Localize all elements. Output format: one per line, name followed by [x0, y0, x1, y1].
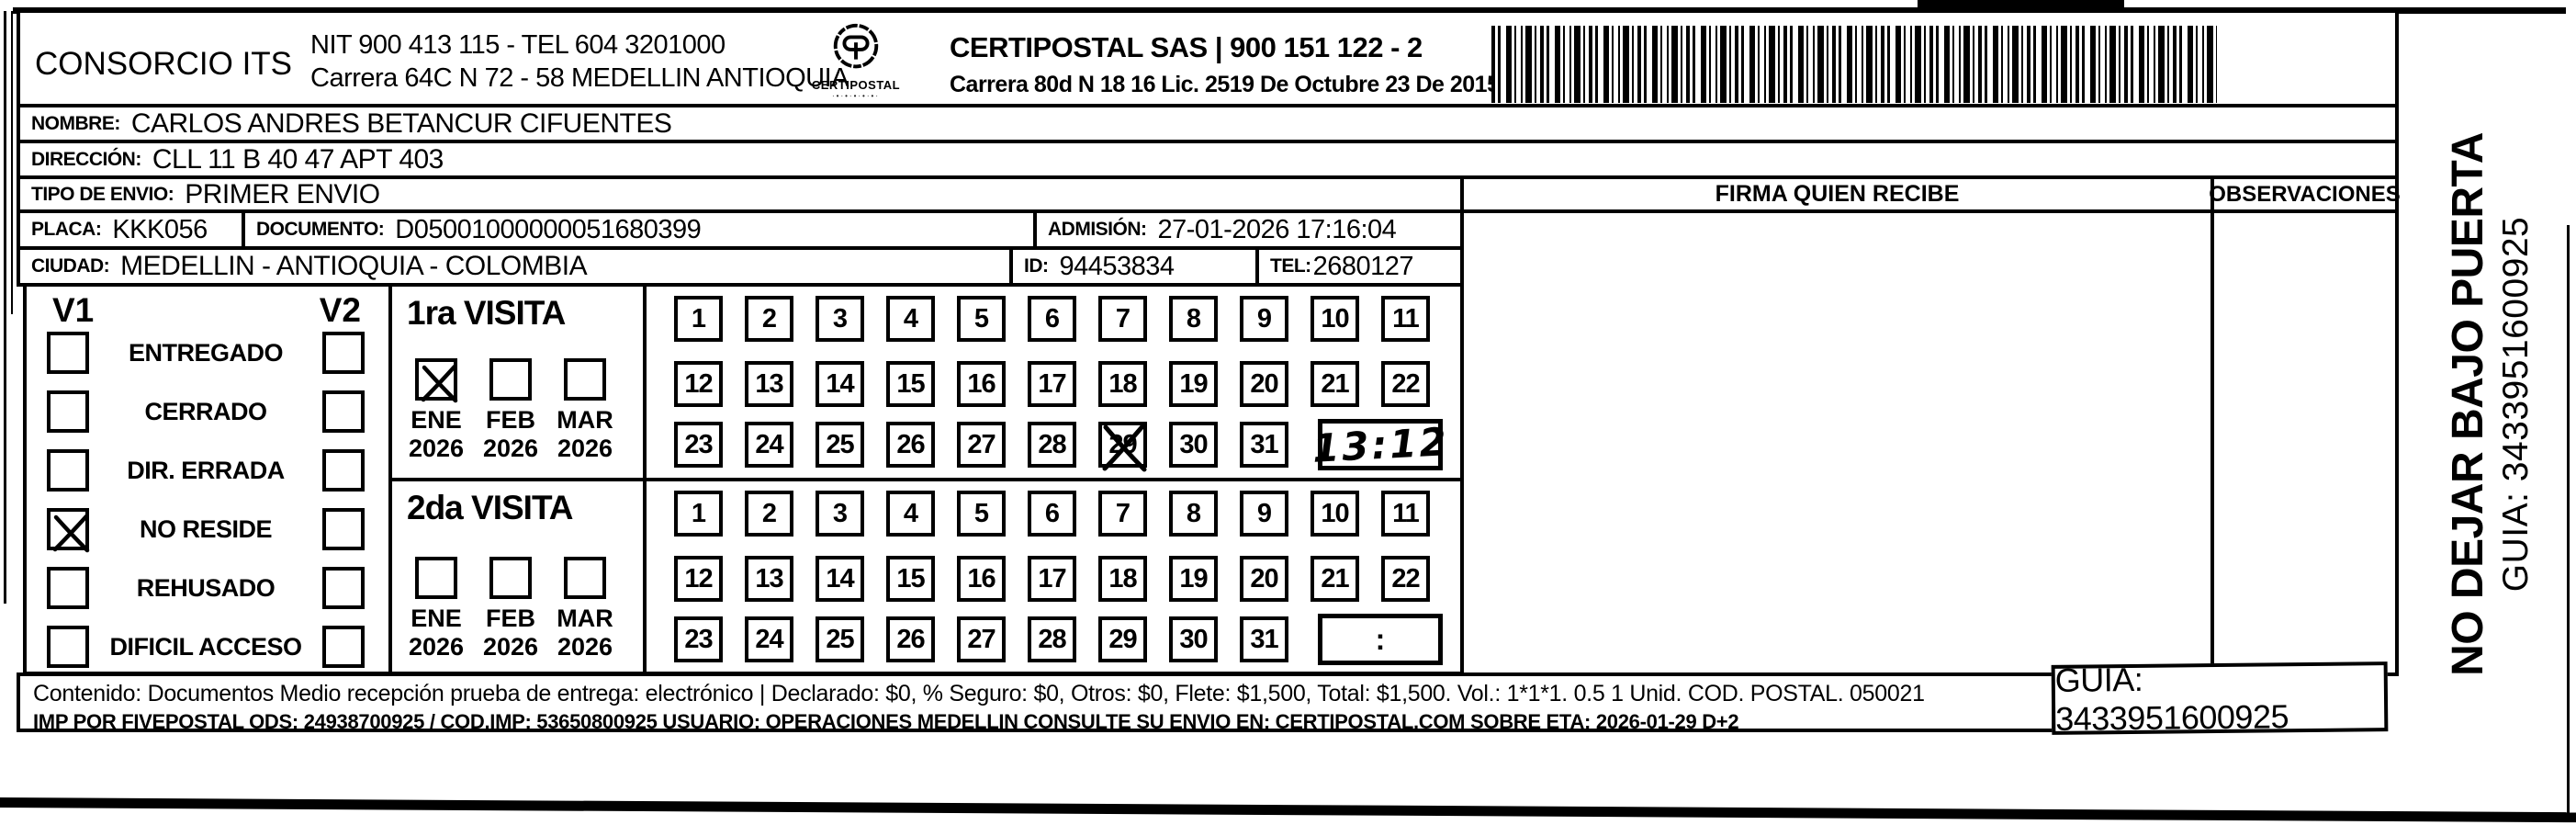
day-number: 11 — [1392, 499, 1419, 529]
bottom-scan-edge-line — [0, 797, 2576, 822]
day-number: 26 — [896, 625, 924, 655]
day-number: 25 — [826, 430, 853, 460]
month-option: MAR2026 — [556, 557, 614, 661]
day-cell: 2 — [745, 296, 793, 342]
day-cell: 19 — [1169, 556, 1218, 602]
day-cell: 4 — [886, 296, 935, 342]
day-number: 25 — [826, 625, 853, 655]
status-checkbox-v2 — [322, 508, 365, 550]
day-number: 15 — [896, 564, 924, 594]
day-cell: 11 — [1381, 296, 1430, 342]
day-cell: 24 — [745, 422, 793, 468]
consorcio-contact-block: NIT 900 413 115 - TEL 604 3201000 Carrer… — [310, 28, 849, 95]
month-year: 2026 — [409, 633, 464, 661]
footer-line1: Contenido: Documentos Medio recepción pr… — [33, 681, 1925, 707]
month-checkbox — [489, 358, 532, 401]
day-number: 23 — [684, 430, 712, 460]
day-cell: 23 — [674, 616, 723, 662]
month-checkbox — [564, 557, 606, 599]
side-note-guia: GUIA: 3433951600925 — [2494, 132, 2538, 676]
left-edge-line-1 — [4, 11, 6, 604]
tel-value: 2680127 — [1313, 252, 1413, 282]
day-cell: 19 — [1169, 361, 1218, 407]
day-cell: 17 — [1028, 361, 1076, 407]
placa-box: PLACA: KKK056 — [17, 209, 245, 250]
day-cell: 31 — [1240, 616, 1288, 662]
placa-label: PLACA: — [31, 219, 101, 241]
day-cell: 28 — [1028, 422, 1076, 468]
visit-time-box: 13:12 — [1318, 419, 1443, 470]
status-row: NO RESIDE — [27, 500, 388, 559]
admision-label: ADMISIÓN: — [1048, 219, 1147, 241]
day-cell: 17 — [1028, 556, 1076, 602]
day-cell: 20 — [1240, 556, 1288, 602]
visit1-title: 1ra VISITA — [407, 294, 565, 333]
logo-subtext: ·•·•·•·•·•· — [801, 92, 911, 100]
status-row: CERRADO — [27, 382, 388, 441]
day-number: 21 — [1321, 564, 1348, 594]
day-number: 20 — [1250, 564, 1277, 594]
day-cell: 20 — [1240, 361, 1288, 407]
day-cell: 27 — [957, 422, 1006, 468]
day-number: 9 — [1257, 499, 1271, 529]
day-cell: 29 — [1098, 422, 1147, 468]
day-cell: 22 — [1381, 361, 1430, 407]
day-number: 23 — [684, 625, 712, 655]
status-checkbox-v1 — [47, 508, 89, 550]
day-number: 27 — [967, 430, 995, 460]
day-number: 21 — [1321, 369, 1348, 400]
day-cell: 22 — [1381, 556, 1430, 602]
day-number: 12 — [684, 369, 712, 400]
visit2-months: ENE2026FEB2026MAR2026 — [407, 557, 614, 661]
day-number: 12 — [684, 564, 712, 594]
firma-content-area — [1460, 209, 2214, 676]
day-number: 20 — [1250, 369, 1277, 400]
visit2-day-grid: 1234567891011121314151617181920212223242… — [643, 478, 1464, 675]
direccion-label: DIRECCIÓN: — [31, 149, 141, 171]
day-cell: 6 — [1028, 491, 1076, 537]
day-cell: 1 — [674, 491, 723, 537]
month-checkbox — [415, 358, 457, 401]
day-number: 16 — [967, 564, 995, 594]
day-cell: 11 — [1381, 491, 1430, 537]
day-cell: 30 — [1169, 422, 1218, 468]
day-cell: 18 — [1098, 556, 1147, 602]
header-band: CONSORCIO ITS NIT 900 413 115 - TEL 604 … — [17, 9, 2399, 107]
day-row: 1213141516171819202122 — [647, 556, 1460, 602]
day-cell: 8 — [1169, 296, 1218, 342]
day-cell: 23 — [674, 422, 723, 468]
day-row: 23242526272829303113:12 — [647, 422, 1460, 470]
time-colon: : — [1376, 623, 1386, 657]
day-number: 22 — [1391, 564, 1419, 594]
day-number: 5 — [974, 304, 988, 334]
status-row: ENTREGADO — [27, 323, 388, 382]
day-cell: 31 — [1240, 422, 1288, 468]
day-row: 1234567891011 — [647, 296, 1460, 342]
documento-box: DOCUMENTO: D05001000000051680399 — [242, 209, 1037, 250]
status-rows: ENTREGADOCERRADODIR. ERRADANO RESIDEREHU… — [27, 323, 388, 676]
day-cell: 14 — [816, 556, 864, 602]
visit2-month-box: 2da VISITA ENE2026FEB2026MAR2026 — [388, 478, 647, 675]
nombre-row: NOMBRE: CARLOS ANDRES BETANCUR CIFUENTES — [17, 104, 2399, 143]
visit1-month-box: 1ra VISITA ENE2026FEB2026MAR2026 — [388, 283, 647, 481]
day-number: 27 — [967, 625, 995, 655]
month-option: FEB2026 — [481, 557, 540, 661]
day-number: 18 — [1108, 564, 1136, 594]
nombre-value: CARLOS ANDRES BETANCUR CIFUENTES — [131, 108, 672, 140]
day-number: 24 — [755, 625, 782, 655]
status-checkbox-v1 — [47, 626, 89, 668]
day-number: 14 — [826, 564, 853, 594]
month-label: ENE — [411, 605, 462, 633]
day-cell: 24 — [745, 616, 793, 662]
day-cell: 7 — [1098, 491, 1147, 537]
day-cell: 25 — [816, 422, 864, 468]
status-option-label: REHUSADO — [89, 574, 322, 603]
visit-time-box: : — [1318, 614, 1443, 665]
admision-value: 27-01-2026 17:16:04 — [1158, 215, 1397, 245]
day-cell: 21 — [1310, 361, 1359, 407]
day-number: 1 — [692, 304, 705, 334]
contenido-footer-box: Contenido: Documentos Medio recepción pr… — [17, 672, 2055, 732]
operator-name-nit: CERTIPOSTAL SAS | 900 151 122 - 2 — [950, 31, 1499, 64]
status-checkbox-v1 — [47, 390, 89, 433]
day-number: 26 — [896, 430, 924, 460]
month-option: ENE2026 — [407, 557, 466, 661]
handwritten-time: 13:12 — [1310, 419, 1449, 471]
day-cell: 29 — [1098, 616, 1147, 662]
day-cell: 21 — [1310, 556, 1359, 602]
status-checkbox-v2 — [322, 449, 365, 492]
month-checkbox — [489, 557, 532, 599]
day-number: 31 — [1250, 430, 1277, 460]
day-number: 13 — [755, 369, 782, 400]
month-label: FEB — [486, 406, 535, 435]
day-number: 11 — [1392, 304, 1419, 334]
status-row: REHUSADO — [27, 559, 388, 617]
logo-text: CERTIPOSTAL — [801, 78, 911, 92]
day-cell: 16 — [957, 361, 1006, 407]
ciudad-value: MEDELLIN - ANTIOQUIA - COLOMBIA — [120, 251, 587, 282]
side-note: NO DEJAR BAJO PUERTA GUIA: 3433951600925 — [2399, 87, 2576, 721]
month-option: ENE2026 — [407, 358, 466, 463]
month-option: FEB2026 — [481, 358, 540, 463]
tipo-envio-value: PRIMER ENVIO — [185, 179, 379, 210]
tracking-barcode — [1491, 26, 2217, 103]
day-number: 28 — [1038, 430, 1065, 460]
nombre-label: NOMBRE: — [31, 113, 120, 135]
observaciones-content-area — [2210, 209, 2399, 676]
day-cell: 3 — [816, 296, 864, 342]
status-checkbox-v2 — [322, 332, 365, 374]
day-cell: 13 — [745, 556, 793, 602]
status-option-label: ENTREGADO — [89, 339, 322, 367]
operator-block: CERTIPOSTAL SAS | 900 151 122 - 2 Carrer… — [950, 31, 1499, 98]
status-option-label: CERRADO — [89, 398, 322, 426]
id-value: 94453834 — [1060, 252, 1175, 282]
day-number: 13 — [755, 564, 782, 594]
id-label: ID: — [1024, 255, 1049, 277]
day-number: 8 — [1187, 499, 1200, 529]
status-checkbox-v2 — [322, 567, 365, 609]
tipo-envio-label: TIPO DE ENVIO: — [31, 184, 174, 206]
delivery-status-box: V1 V2 ENTREGADOCERRADODIR. ERRADANO RESI… — [23, 283, 392, 675]
month-label: MAR — [557, 406, 613, 435]
footer-line2: IMP POR FIVEPOSTAL ODS: 24938700925 / CO… — [33, 710, 1738, 734]
status-checkbox-v2 — [322, 390, 365, 433]
day-number: 30 — [1179, 625, 1207, 655]
month-year: 2026 — [409, 435, 464, 463]
status-option-label: DIFICIL ACCESO — [89, 633, 322, 661]
ciudad-label: CIUDAD: — [31, 255, 109, 277]
status-option-label: DIR. ERRADA — [89, 457, 322, 485]
month-year: 2026 — [483, 435, 538, 463]
day-cell: 15 — [886, 361, 935, 407]
day-number: 10 — [1321, 499, 1348, 529]
day-number: 3 — [833, 304, 847, 334]
guia-number-box: GUIA: 3433951600925 — [2052, 661, 2389, 735]
day-cell: 30 — [1169, 616, 1218, 662]
day-cell: 8 — [1169, 491, 1218, 537]
status-row: DIR. ERRADA — [27, 441, 388, 500]
day-cell: 12 — [674, 361, 723, 407]
tel-box: TEL: 2680127 — [1255, 246, 1464, 287]
day-cell: 27 — [957, 616, 1006, 662]
month-checkbox — [415, 557, 457, 599]
visit2-title: 2da VISITA — [407, 489, 573, 527]
day-number: 15 — [896, 369, 924, 400]
tipo-envio-box: TIPO DE ENVIO: PRIMER ENVIO — [17, 175, 1464, 213]
visit1-months: ENE2026FEB2026MAR2026 — [407, 358, 614, 463]
day-cell: 10 — [1310, 491, 1359, 537]
day-number: 14 — [826, 369, 853, 400]
day-number: 17 — [1038, 564, 1065, 594]
certipostal-logo: CERTIPOSTAL ·•·•·•·•·•· — [801, 20, 911, 100]
month-label: FEB — [486, 605, 535, 633]
day-cell: 15 — [886, 556, 935, 602]
day-number: 8 — [1187, 304, 1200, 334]
day-cell: 6 — [1028, 296, 1076, 342]
day-number: 28 — [1038, 625, 1065, 655]
day-cell: 13 — [745, 361, 793, 407]
day-cell: 2 — [745, 491, 793, 537]
day-number: 18 — [1108, 369, 1136, 400]
direccion-value: CLL 11 B 40 47 APT 403 — [152, 144, 444, 175]
placa-value: KKK056 — [112, 215, 207, 245]
day-number: 2 — [762, 304, 776, 334]
day-row: 1234567891011 — [647, 491, 1460, 537]
ciudad-box: CIUDAD: MEDELLIN - ANTIOQUIA - COLOMBIA — [17, 246, 1013, 287]
status-option-label: NO RESIDE — [89, 515, 322, 544]
month-option: MAR2026 — [556, 358, 614, 463]
day-number: 1 — [692, 499, 705, 529]
day-number: 31 — [1250, 625, 1277, 655]
day-number: 22 — [1391, 369, 1419, 400]
day-number: 6 — [1045, 499, 1059, 529]
day-number: 4 — [904, 499, 917, 529]
status-checkbox-v1 — [47, 567, 89, 609]
month-year: 2026 — [557, 633, 613, 661]
documento-value: D05001000000051680399 — [395, 215, 701, 245]
observaciones-column-header: OBSERVACIONES — [2210, 175, 2399, 213]
day-number: 6 — [1045, 304, 1059, 334]
day-number: 7 — [1116, 304, 1130, 334]
status-checkbox-v1 — [47, 332, 89, 374]
operator-address-lic: Carrera 80d N 18 16 Lic. 2519 De Octubre… — [950, 72, 1499, 98]
day-number: 30 — [1179, 430, 1207, 460]
day-number: 7 — [1116, 499, 1130, 529]
day-cell: 25 — [816, 616, 864, 662]
certipostal-logo-icon — [827, 20, 884, 77]
month-label: MAR — [557, 605, 613, 633]
day-cell: 5 — [957, 296, 1006, 342]
day-number: 4 — [904, 304, 917, 334]
day-cell: 3 — [816, 491, 864, 537]
day-cell: 28 — [1028, 616, 1076, 662]
id-box: ID: 94453834 — [1009, 246, 1259, 287]
day-cell: 12 — [674, 556, 723, 602]
day-number: 19 — [1179, 369, 1207, 400]
side-note-warning: NO DEJAR BAJO PUERTA — [2443, 132, 2494, 676]
consorcio-nit-tel: NIT 900 413 115 - TEL 604 3201000 — [310, 28, 849, 62]
day-number: 5 — [974, 499, 988, 529]
status-checkbox-v1 — [47, 449, 89, 492]
day-cell: 1 — [674, 296, 723, 342]
day-cell: 26 — [886, 422, 935, 468]
visit1-day-grid: 1234567891011121314151617181920212223242… — [643, 283, 1464, 481]
day-row: 232425262728293031: — [647, 616, 1460, 665]
status-checkbox-v2 — [322, 626, 365, 668]
day-number: 2 — [762, 499, 776, 529]
day-cell: 5 — [957, 491, 1006, 537]
day-cell: 14 — [816, 361, 864, 407]
day-number: 24 — [755, 430, 782, 460]
month-checkbox — [564, 358, 606, 401]
day-number: 17 — [1038, 369, 1065, 400]
day-cell: 16 — [957, 556, 1006, 602]
day-number: 10 — [1321, 304, 1348, 334]
day-number: 29 — [1108, 625, 1136, 655]
left-edge-line-2 — [11, 11, 13, 314]
firma-column-header: FIRMA QUIEN RECIBE — [1460, 175, 2214, 213]
day-cell: 7 — [1098, 296, 1147, 342]
consorcio-address: Carrera 64C N 72 - 58 MEDELLIN ANTIOQUIA — [310, 62, 849, 95]
day-number: 3 — [833, 499, 847, 529]
scanned-delivery-form: CONSORCIO ITS NIT 900 413 115 - TEL 604 … — [0, 0, 2576, 825]
day-cell: 10 — [1310, 296, 1359, 342]
status-row: DIFICIL ACCESO — [27, 617, 388, 676]
day-cell: 9 — [1240, 296, 1288, 342]
day-cell: 18 — [1098, 361, 1147, 407]
consorcio-name: CONSORCIO ITS — [35, 46, 292, 83]
day-row: 1213141516171819202122 — [647, 361, 1460, 407]
day-number: 9 — [1257, 304, 1271, 334]
day-number: 19 — [1179, 564, 1207, 594]
day-number: 16 — [967, 369, 995, 400]
month-year: 2026 — [557, 435, 613, 463]
admision-box: ADMISIÓN: 27-01-2026 17:16:04 — [1033, 209, 1464, 250]
month-year: 2026 — [483, 633, 538, 661]
documento-label: DOCUMENTO: — [256, 219, 384, 241]
day-cell: 26 — [886, 616, 935, 662]
direccion-row: DIRECCIÓN: CLL 11 B 40 47 APT 403 — [17, 140, 2399, 179]
scan-artifact-bar — [1918, 0, 2124, 9]
day-cell: 4 — [886, 491, 935, 537]
tel-label: TEL: — [1270, 255, 1311, 277]
day-cell: 9 — [1240, 491, 1288, 537]
